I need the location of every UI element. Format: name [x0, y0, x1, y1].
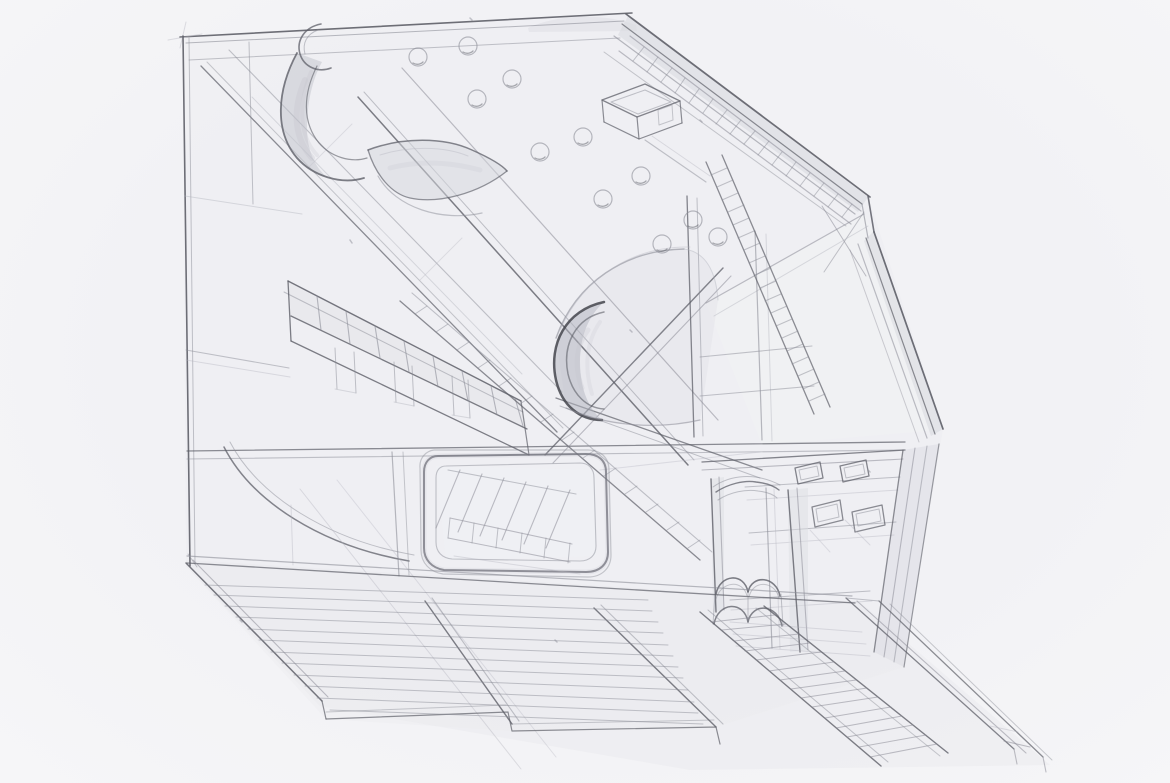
sketch-svg	[0, 0, 1170, 783]
sketch-page	[0, 0, 1170, 783]
